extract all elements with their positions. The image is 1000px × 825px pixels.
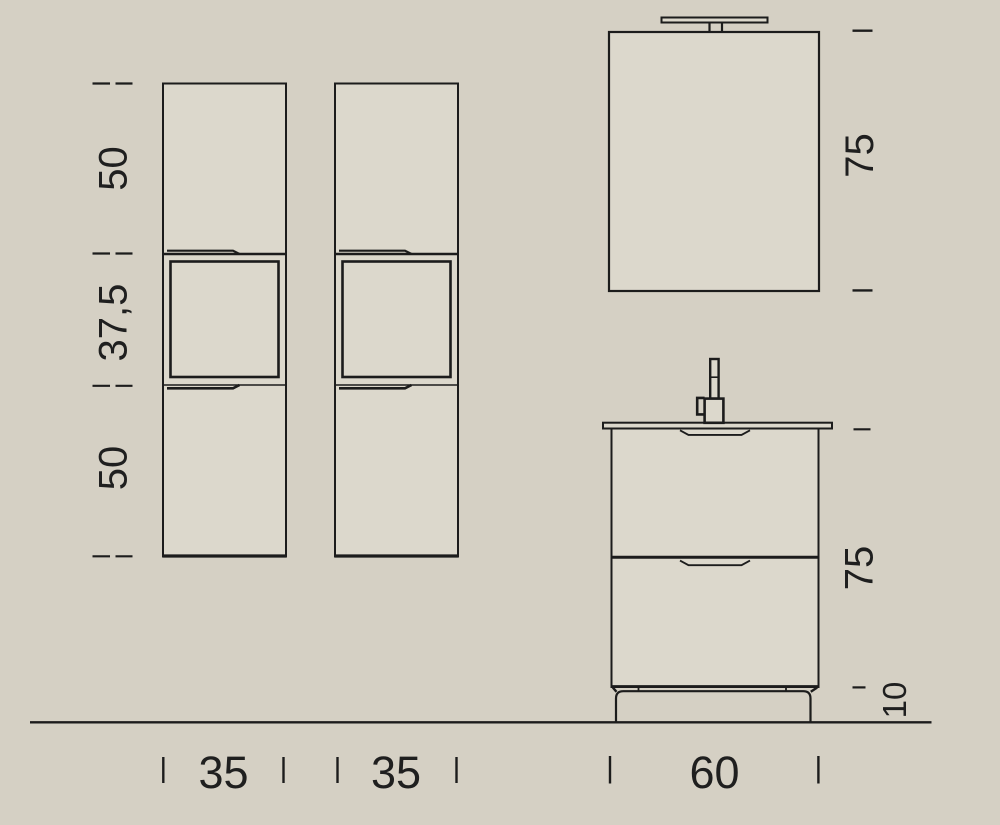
dim-label-column-bottom: 50 — [92, 446, 136, 491]
tall-cabinet-1-body — [163, 84, 286, 557]
tall-cabinet-2 — [335, 84, 458, 557]
dim-label-vanity-width: 60 — [689, 747, 739, 798]
dim-label-column1-width: 35 — [198, 747, 248, 798]
dim-label-column2-width: 35 — [371, 747, 421, 798]
dim-label-mirror-height: 75 — [838, 133, 882, 178]
dim-label-column-middle: 37,5 — [92, 284, 136, 362]
tall-cabinet-2-body — [335, 84, 458, 557]
mirror-unit — [609, 18, 819, 292]
tall-cabinet-1 — [163, 84, 286, 557]
faucet — [697, 359, 723, 423]
vanity-foot-corner-left — [613, 688, 617, 692]
mirror-light-bar — [662, 18, 768, 23]
technical-drawing: 50 37,5 50 75 75 10 35 35 60 — [0, 0, 1000, 825]
faucet-spout — [710, 359, 718, 399]
mirror — [609, 32, 819, 291]
vanity-foot-corner-right — [811, 688, 817, 692]
vanity-plinth — [616, 691, 811, 722]
vanity-unit — [603, 359, 832, 722]
dim-label-vanity-height: 75 — [838, 546, 882, 591]
dim-label-vanity-feet: 10 — [876, 682, 913, 719]
dim-label-column-top: 50 — [92, 146, 136, 191]
faucet-base — [705, 399, 724, 423]
